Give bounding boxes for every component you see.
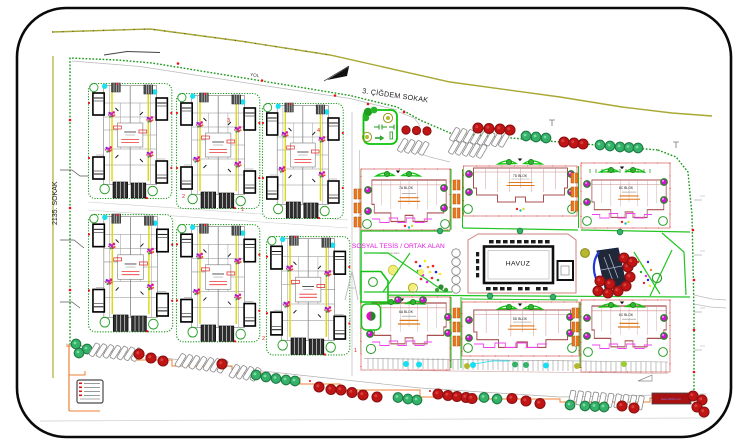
svg-text:3: 3: [227, 118, 230, 124]
svg-text:2: 2: [182, 194, 185, 200]
svg-text:6C BLOK: 6C BLOK: [619, 313, 634, 317]
svg-text:HAVUZ: HAVUZ: [506, 261, 531, 268]
svg-text:2135. SOKAK: 2135. SOKAK: [52, 181, 59, 225]
svg-text:www.0000.com: www.0000.com: [661, 397, 682, 401]
svg-text:1: 1: [354, 348, 357, 354]
svg-text:8C BLOK: 8C BLOK: [619, 186, 634, 190]
svg-text:2: 2: [262, 336, 265, 342]
svg-text:6A BLOK: 6A BLOK: [399, 310, 414, 314]
svg-text:5D BLOK: 5D BLOK: [513, 317, 528, 321]
svg-text:4: 4: [317, 128, 320, 134]
svg-text:7A BLOK: 7A BLOK: [399, 186, 414, 190]
svg-text:7D BLOK: 7D BLOK: [513, 174, 528, 178]
svg-text:1: 1: [241, 207, 244, 213]
svg-text:SOSYAL TESİS / ORTAK ALAN: SOSYAL TESİS / ORTAK ALAN: [352, 241, 445, 250]
